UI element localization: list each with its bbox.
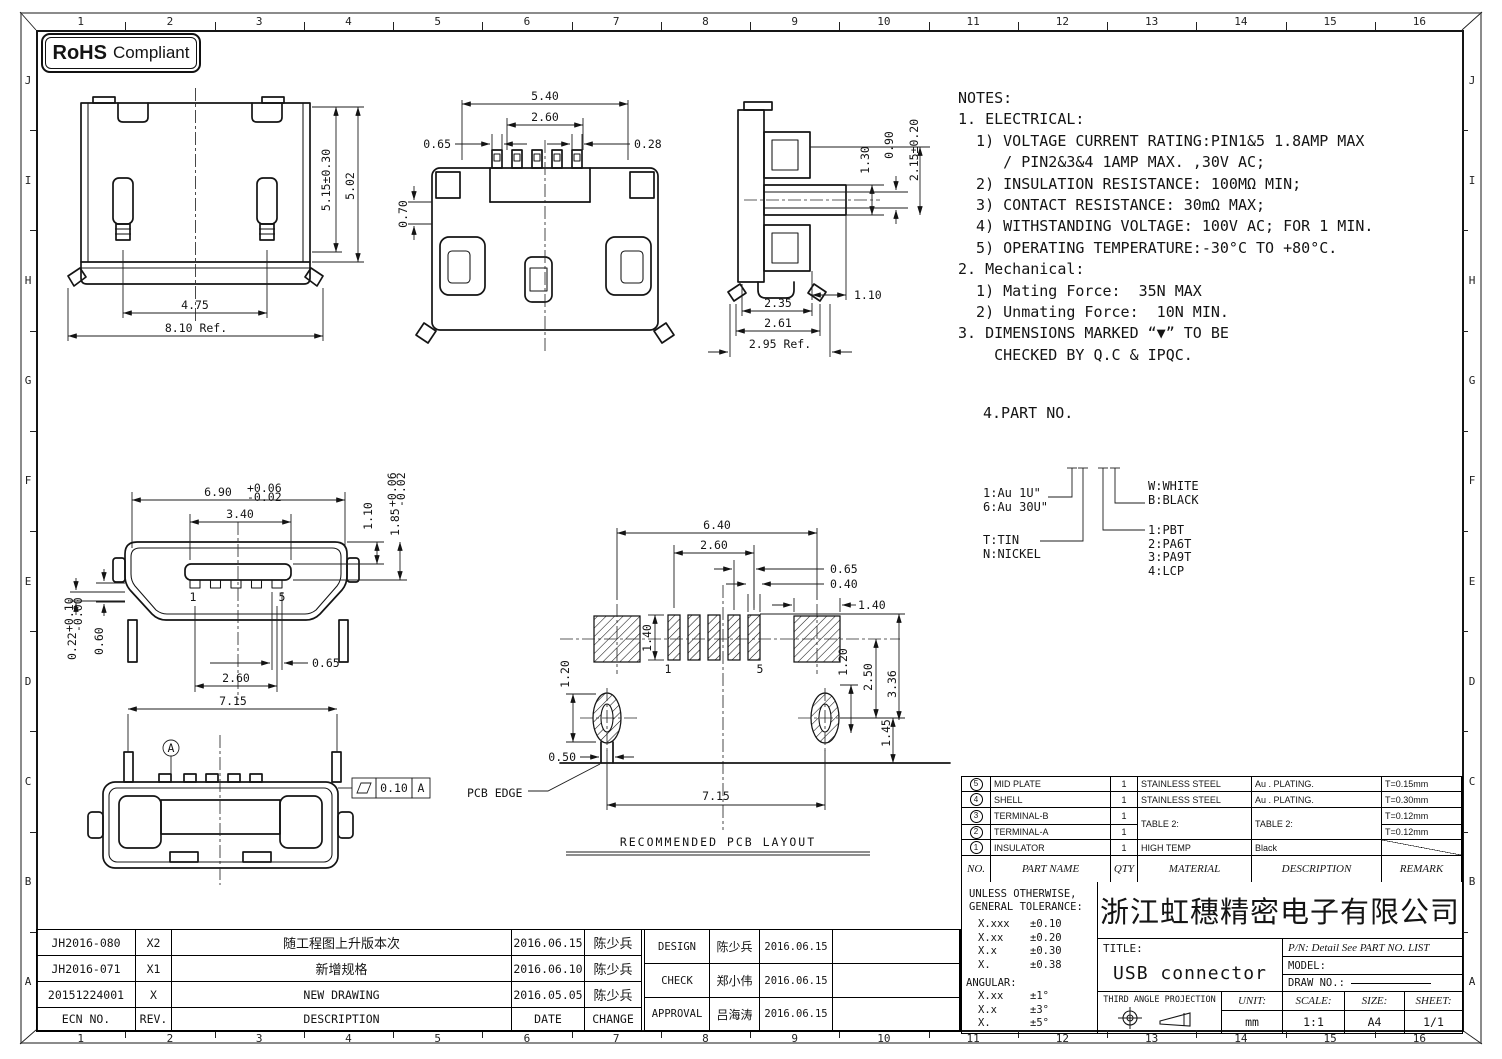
part-number-row: P/N: Detail See PART NO. LIST [1283, 939, 1462, 957]
tolerance-row: X.x±0.30 [962, 945, 1097, 959]
bom-qty: 1 [1111, 825, 1138, 840]
dim-pcb-edge-gap: 1.45 [879, 719, 893, 747]
title-cell: TITLE: USB connector [1098, 939, 1283, 991]
rev-ecn: 20151224001 [37, 982, 136, 1008]
bottom-pins [159, 774, 262, 782]
flatness-symbol [357, 783, 371, 793]
dim-height-body: 5.02 [343, 172, 357, 200]
bom-no: 2 [962, 825, 991, 840]
rev-change: 陈少兵 [585, 982, 642, 1008]
bom-qty: 1 [1111, 840, 1138, 856]
rev-date: 2016.06.10 [512, 956, 585, 982]
rev-rev: X1 [136, 956, 172, 982]
dim-leg-offset: 0.60 [92, 627, 106, 655]
dim-shell-width: 6.90 [204, 485, 232, 499]
view-top: 5.40 2.60 0.65 0.28 0.70 [396, 89, 674, 352]
tolerance-row: X.±5° [962, 1017, 1097, 1031]
dim-pcb-pin-span: 2.60 [700, 538, 728, 552]
dim-shell-width-tol-lower: -0.02 [247, 490, 282, 504]
drawing-sheet: 1122334455667788991010111112121313141415… [0, 0, 1502, 1059]
dim-overall-ref: 8.10 Ref. [165, 321, 227, 335]
approval-name: 郑小伟 [710, 964, 760, 998]
rev-change: 陈少兵 [585, 930, 642, 956]
dim-pcb-hole-height-r: 1.20 [836, 648, 850, 676]
fcf-datum: A [418, 781, 425, 795]
mount-post-left [113, 178, 133, 240]
bom-desc: Au . PLATING. [1252, 777, 1382, 792]
dim-pin-span: 2.60 [531, 110, 559, 124]
bom-header-part: PART NAME [991, 856, 1111, 882]
bom-header-desc: DESCRIPTION [1252, 856, 1382, 882]
model-row: MODEL: [1283, 957, 1462, 975]
bom-no: 5 [962, 777, 991, 792]
dim-pcb-stem-width: 0.50 [548, 750, 576, 764]
rev-change: 陈少兵 [585, 956, 642, 982]
bom-part: INSULATOR [991, 840, 1111, 856]
approval-date: 2016.06.15 [760, 930, 833, 964]
part-no-tree-lines [1040, 468, 1145, 541]
pcb-pin1-label: 1 [665, 662, 672, 676]
dim-top-width: 5.40 [531, 89, 559, 103]
rev-header-date: DATE [512, 1008, 585, 1031]
dim-depth-ref: 2.95 Ref. [749, 337, 811, 351]
drawing-title: USB connector [1098, 963, 1282, 984]
tolerance-row: X.x±3° [962, 1004, 1097, 1018]
dim-pin-width-face: 0.65 [312, 656, 340, 670]
dim-depth-b: 2.61 [764, 316, 792, 330]
approval-role: APPROVAL [645, 998, 710, 1031]
bom-remark: T=0.12mm [1382, 808, 1462, 825]
rev-rev: X [136, 982, 172, 1008]
dim-height-shell: 5.15±0.30 [319, 149, 333, 211]
approval-role: CHECK [645, 964, 710, 998]
dim-pin-offset: 0.65 [423, 137, 451, 151]
approval-table: DESIGN 陈少兵 2016.06.15 CHECK 郑小伟 2016.06.… [645, 929, 961, 1032]
revision-table: JH2016-080 X2 随工程图上升版本次 2016.06.15 陈少兵 J… [36, 929, 645, 1032]
bom-no: 1 [962, 840, 991, 856]
svg-text:0.22: 0.22 [65, 632, 79, 660]
rev-header-desc: DESCRIPTION [172, 1008, 512, 1031]
bom-desc: Au . PLATING. [1252, 792, 1382, 808]
bom-qty: 1 [1111, 777, 1138, 792]
view-bottom: A 0.10 A 7.15 [88, 694, 430, 885]
unit-cell: UNIT: mm [1222, 992, 1283, 1033]
dim-pcb-hole-span: 7.15 [702, 789, 730, 803]
bom-table: 5 MID PLATE 1 STAINLESS STEEL Au . PLATI… [962, 777, 1462, 882]
dim-pcb-total-gap: 3.36 [885, 670, 899, 698]
scale-cell: SCALE: 1:1 [1283, 992, 1345, 1033]
bom-remark-diagonal [1382, 840, 1462, 856]
bom-part: TERMINAL-B [991, 808, 1111, 825]
tolerance-block: UNLESS OTHERWISE, GENERAL TOLERANCE: X.x… [962, 882, 1098, 1033]
bom-material: HIGH TEMP [1138, 840, 1252, 856]
bom-remark: T=0.30mm [1382, 792, 1462, 808]
bom-remark: T=0.12mm [1382, 825, 1462, 840]
svg-text:-0.00: -0.00 [71, 597, 85, 632]
dim-tongue-height: 1.85 +0.06 -0.02 [385, 472, 408, 536]
tolerance-row: X.xxx±0.10 [962, 918, 1097, 932]
dim-tongue-width: 3.40 [226, 507, 254, 521]
rev-header-ecn: ECN NO. [37, 1008, 136, 1031]
tolerance-rows: X.xxx±0.10X.xx±0.20X.x±0.30X.±0.38 [962, 918, 1097, 972]
approval-name: 陈少兵 [710, 930, 760, 964]
approval-date: 2016.06.15 [760, 964, 833, 998]
title-bottom-strip: THIRD ANGLE PROJECTION UNIT: mm SCALE: 1… [1098, 991, 1462, 1033]
sheet-cell: SHEET: 1/1 [1405, 992, 1462, 1033]
bom-header-remark: REMARK [1382, 856, 1462, 882]
dim-foot-offset: 1.10 [854, 288, 882, 302]
bom-qty: 1 [1111, 808, 1138, 825]
dim-pcb-pad-pitch: 0.65 [830, 562, 858, 576]
tolerance-row: X.xx±1° [962, 990, 1097, 1004]
bom-part: SHELL [991, 792, 1111, 808]
bom-material-merged: TABLE 2: [1138, 808, 1252, 840]
title-label: TITLE: [1103, 942, 1143, 955]
tolerance-row: X.xx±0.20 [962, 932, 1097, 946]
rev-rev: X2 [136, 930, 172, 956]
projection-cell: THIRD ANGLE PROJECTION [1098, 992, 1222, 1033]
bom-material: STAINLESS STEEL [1138, 792, 1252, 808]
draw-no-row: DRAW NO.: [1283, 975, 1462, 991]
dim-post-pitch: 4.75 [181, 298, 209, 312]
rev-desc: 新增规格 [172, 956, 512, 982]
bom-qty: 1 [1111, 792, 1138, 808]
dim-pin-width: 0.28 [634, 137, 662, 151]
approval-extra [833, 964, 960, 998]
datum-a-label: A [168, 741, 175, 755]
dim-pcb-pad-height: 1.40 [640, 624, 654, 652]
rev-header-rev: REV. [136, 1008, 172, 1031]
bom-part: TERMINAL-A [991, 825, 1111, 840]
bom-header-material: MATERIAL [1138, 856, 1252, 882]
rev-header-change: CHANGE [585, 1008, 642, 1031]
pcb-signal-pads [668, 615, 760, 660]
approval-role: DESIGN [645, 930, 710, 964]
dim-pin-span-face: 2.60 [222, 671, 250, 685]
bom-header-no: NO. [962, 856, 991, 882]
size-cell: SIZE: A4 [1345, 992, 1405, 1033]
approval-name: 吕海涛 [710, 998, 760, 1031]
bom-no: 3 [962, 808, 991, 825]
view-pcb-layout: 1 5 6.40 2.60 0.65 0.40 1.40 [467, 518, 950, 855]
dim-slot-height: 0.90 [882, 131, 896, 159]
projection-label: THIRD ANGLE PROJECTION [1098, 995, 1221, 1005]
view-mating-face: 1 5 6.90 +0.06 -0.02 3.40 1.10 1.85 +0.0… [62, 472, 408, 700]
rev-date: 2016.06.15 [512, 930, 585, 956]
view-front-elevation: 5.15±0.30 5.02 4.75 8.10 Ref. [68, 88, 364, 341]
fcf-tolerance: 0.10 [380, 781, 408, 795]
pcb-edge-label: PCB EDGE [467, 786, 522, 800]
dim-pcb-pad-span: 6.40 [703, 518, 731, 532]
pin1-label: 1 [190, 590, 197, 604]
rev-ecn: JH2016-080 [37, 930, 136, 956]
rev-desc: 随工程图上升版本次 [172, 930, 512, 956]
dim-side-offset: 0.70 [396, 200, 410, 228]
mount-post-right [257, 178, 277, 240]
dim-pcb-row-gap: 2.50 [861, 663, 875, 691]
dim-tab-height: 1.30 [858, 146, 872, 174]
bom-desc-merged: TABLE 2: [1252, 808, 1382, 840]
svg-text:-0.02: -0.02 [394, 472, 408, 507]
bom-no: 4 [962, 792, 991, 808]
tolerance-angular: ANGULAR: [962, 977, 1097, 990]
tolerance-row: X.±0.38 [962, 959, 1097, 973]
bom-part: MID PLATE [991, 777, 1111, 792]
rev-desc: NEW DRAWING [172, 982, 512, 1008]
approval-extra [833, 930, 960, 964]
dim-wall-thickness: 0.22 +0.10 -0.00 [62, 597, 85, 660]
rev-ecn: JH2016-071 [37, 956, 136, 982]
contact-pins [190, 580, 282, 588]
third-angle-symbol [1098, 1005, 1222, 1031]
solder-tails [492, 150, 582, 168]
tolerance-line1: UNLESS OTHERWISE, [962, 888, 1097, 901]
dim-depth-a: 2.35 [764, 296, 792, 310]
pcb-pin5-label: 5 [757, 662, 764, 676]
dim-tab-position: 2.15±0.20 [907, 119, 921, 181]
rev-date: 2016.05.05 [512, 982, 585, 1008]
bom-remark: T=0.15mm [1382, 777, 1462, 792]
tolerance-angular-rows: X.xx±1°X.x±3°X.±5° [962, 990, 1097, 1031]
svg-text:1.85: 1.85 [388, 508, 402, 536]
tolerance-line2: GENERAL TOLERANCE: [962, 901, 1097, 914]
approval-extra [833, 998, 960, 1031]
bom-material: STAINLESS STEEL [1138, 777, 1252, 792]
bom-header-qty: QTY [1111, 856, 1138, 882]
svg-text:0.60: 0.60 [92, 627, 106, 655]
dim-pcb-big-pad: 1.40 [858, 598, 886, 612]
dim-pcb-hole-height: 1.20 [558, 660, 572, 688]
approval-date: 2016.06.15 [760, 998, 833, 1031]
dim-shell-width-ref: 7.15 [219, 694, 247, 708]
dim-tongue-top-gap: 1.10 [361, 502, 375, 530]
pcb-layout-title: RECOMMENDED PCB LAYOUT [620, 835, 816, 849]
dim-pcb-pad-width: 0.40 [830, 577, 858, 591]
view-side: 1.30 0.90 2.15±0.20 1.10 2.35 2.61 [708, 102, 930, 357]
title-block: 5 MID PLATE 1 STAINLESS STEEL Au . PLATI… [961, 776, 1463, 1034]
draw-no-blank-line [1351, 983, 1431, 984]
bom-desc: Black [1252, 840, 1382, 856]
company-name: 浙江虹穗精密电子有限公司 [1098, 882, 1462, 939]
